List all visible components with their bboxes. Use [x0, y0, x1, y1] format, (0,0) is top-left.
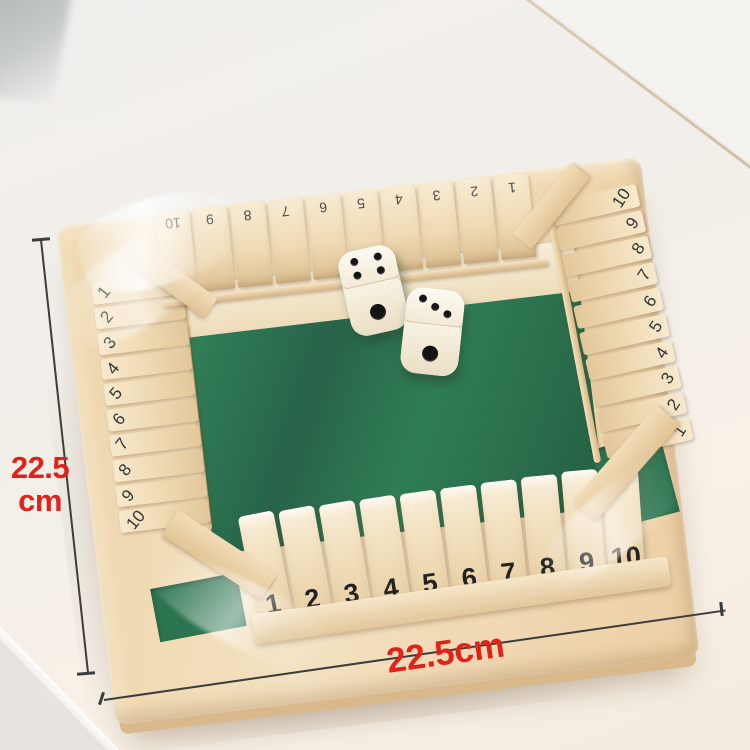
- tile-number: 4: [103, 358, 124, 378]
- height-value: 22.5: [0, 452, 80, 485]
- tile-number: 8: [243, 207, 252, 224]
- die-pip: [421, 344, 439, 362]
- tile-number: 7: [281, 203, 290, 220]
- tile-number: 7: [633, 266, 655, 285]
- tile-number: 10: [608, 185, 635, 212]
- die-pip: [431, 302, 440, 311]
- die-pip: [376, 266, 386, 276]
- wooden-die: [399, 286, 466, 378]
- tile-number: 5: [645, 318, 667, 337]
- tile-number: 6: [109, 409, 130, 429]
- number-tile: 2: [456, 177, 499, 264]
- tile-number: 3: [432, 187, 441, 204]
- tile-number: 2: [470, 183, 479, 200]
- number-tile: 3: [418, 181, 461, 268]
- tile-number: 5: [106, 384, 127, 404]
- tile-number: 9: [621, 214, 643, 233]
- tile-number: 2: [663, 395, 685, 414]
- number-tile: 7: [267, 197, 310, 284]
- height-unit: cm: [0, 485, 80, 518]
- tile-number: 9: [118, 485, 139, 505]
- tile-number: 8: [627, 240, 649, 259]
- die-front-face: [399, 322, 462, 378]
- tile-number: 10: [122, 507, 149, 534]
- die-pip: [353, 271, 363, 281]
- tile-number: 1: [507, 179, 516, 196]
- product-photo: 10987654321 12345678910 10987654321 1234…: [0, 0, 750, 750]
- height-dimension-label: 22.5 cm: [0, 452, 80, 518]
- die-pip: [443, 310, 452, 319]
- tile-number: 7: [112, 435, 133, 455]
- die-top-face: [404, 286, 466, 328]
- die-pip: [350, 257, 360, 267]
- tile-number: 6: [319, 199, 328, 216]
- tile-number: 4: [651, 344, 673, 363]
- tile-number: 6: [639, 292, 661, 311]
- tile-number: 5: [356, 195, 365, 212]
- die-pip: [373, 252, 383, 262]
- die-pip: [368, 302, 387, 321]
- tile-number: 8: [115, 460, 136, 480]
- tile-number: 3: [657, 370, 679, 389]
- tile-number: 4: [394, 191, 403, 208]
- die-pip: [418, 294, 427, 303]
